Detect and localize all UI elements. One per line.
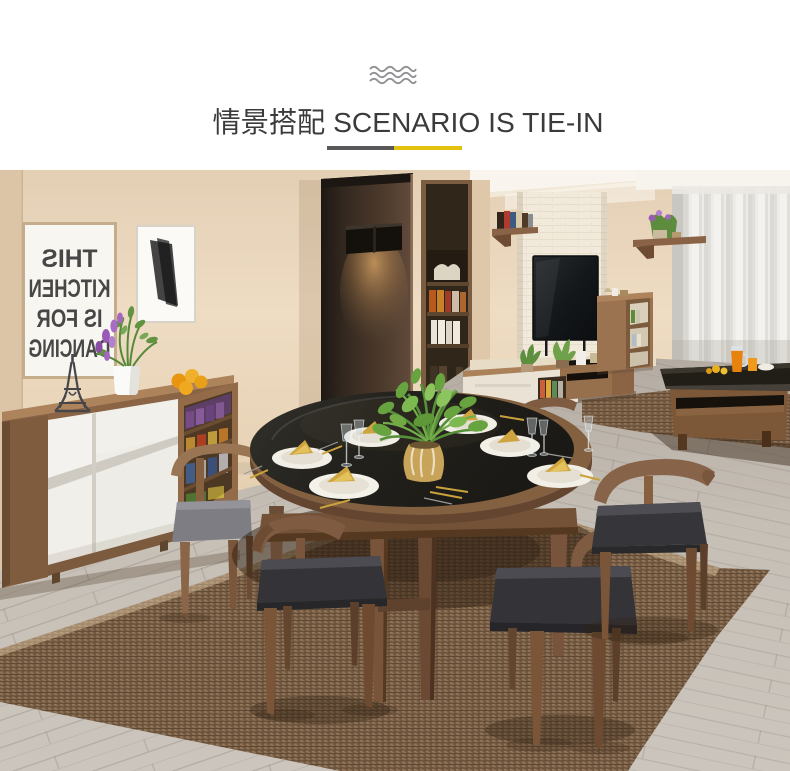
svg-text:THIS: THIS: [42, 245, 98, 273]
svg-text:IS FOR: IS FOR: [37, 305, 103, 333]
svg-text:KITCHEN: KITCHEN: [29, 275, 111, 303]
